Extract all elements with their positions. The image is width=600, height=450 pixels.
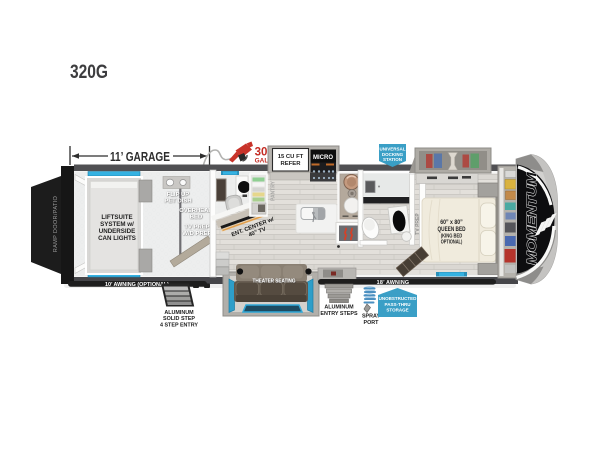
svg-text:PORT: PORT — [364, 320, 380, 326]
svg-text:QUEEN BED: QUEEN BED — [438, 227, 467, 233]
svg-text:REFER: REFER — [281, 161, 302, 167]
svg-text:10’ AWNING (OPTIONAL): 10’ AWNING (OPTIONAL) — [105, 282, 169, 288]
svg-text:PASS-THRU: PASS-THRU — [385, 302, 411, 307]
svg-text:GAL: GAL — [255, 158, 269, 165]
svg-text:UNOBSTRUCTED: UNOBSTRUCTED — [379, 296, 417, 301]
svg-text:PET DISH: PET DISH — [164, 199, 191, 205]
svg-text:RAMP DOOR/PATIO: RAMP DOOR/PATIO — [53, 195, 59, 252]
svg-text:TV PREP: TV PREP — [415, 213, 421, 235]
svg-text:15 CU FT: 15 CU FT — [278, 154, 304, 160]
svg-text:60” x 80”: 60” x 80” — [440, 220, 463, 226]
svg-text:TV PREP: TV PREP — [184, 225, 209, 231]
svg-text:SPRAY: SPRAY — [362, 314, 380, 320]
svg-text:SOLID STEP: SOLID STEP — [163, 316, 195, 322]
svg-text:OPTIONAL): OPTIONAL) — [441, 239, 463, 245]
svg-text:THEATER SEATING: THEATER SEATING — [253, 279, 296, 285]
svg-text:W/D PREP: W/D PREP — [182, 231, 211, 237]
svg-text:4 STEP ENTRY: 4 STEP ENTRY — [160, 323, 198, 329]
svg-text:ALUMINUM: ALUMINUM — [164, 310, 194, 316]
svg-text:ENTRY STEPS: ENTRY STEPS — [320, 311, 358, 317]
svg-text:ALUMINUM: ALUMINUM — [324, 305, 354, 311]
svg-text:320G: 320G — [70, 62, 108, 83]
svg-text:UNDERSIDE: UNDERSIDE — [99, 228, 135, 235]
svg-text:STORAGE: STORAGE — [386, 308, 408, 313]
svg-text:OVERHEAD: OVERHEAD — [179, 208, 212, 214]
svg-text:CAN LIGHTS: CAN LIGHTS — [98, 235, 136, 242]
svg-text:FLIP UP: FLIP UP — [167, 192, 190, 198]
svg-text:SYSTEM w/: SYSTEM w/ — [100, 221, 134, 228]
svg-text:18’ AWNING: 18’ AWNING — [377, 280, 410, 286]
svg-text:BED: BED — [190, 215, 202, 221]
svg-text:STATION: STATION — [383, 157, 402, 162]
svg-text:MOMENTUM: MOMENTUM — [525, 171, 539, 265]
svg-text:MICRO: MICRO — [313, 155, 333, 161]
svg-text:LIFTSUITE: LIFTSUITE — [101, 214, 132, 221]
svg-text:PANTRY: PANTRY — [270, 180, 276, 201]
svg-text:11’ GARAGE: 11’ GARAGE — [110, 150, 170, 164]
